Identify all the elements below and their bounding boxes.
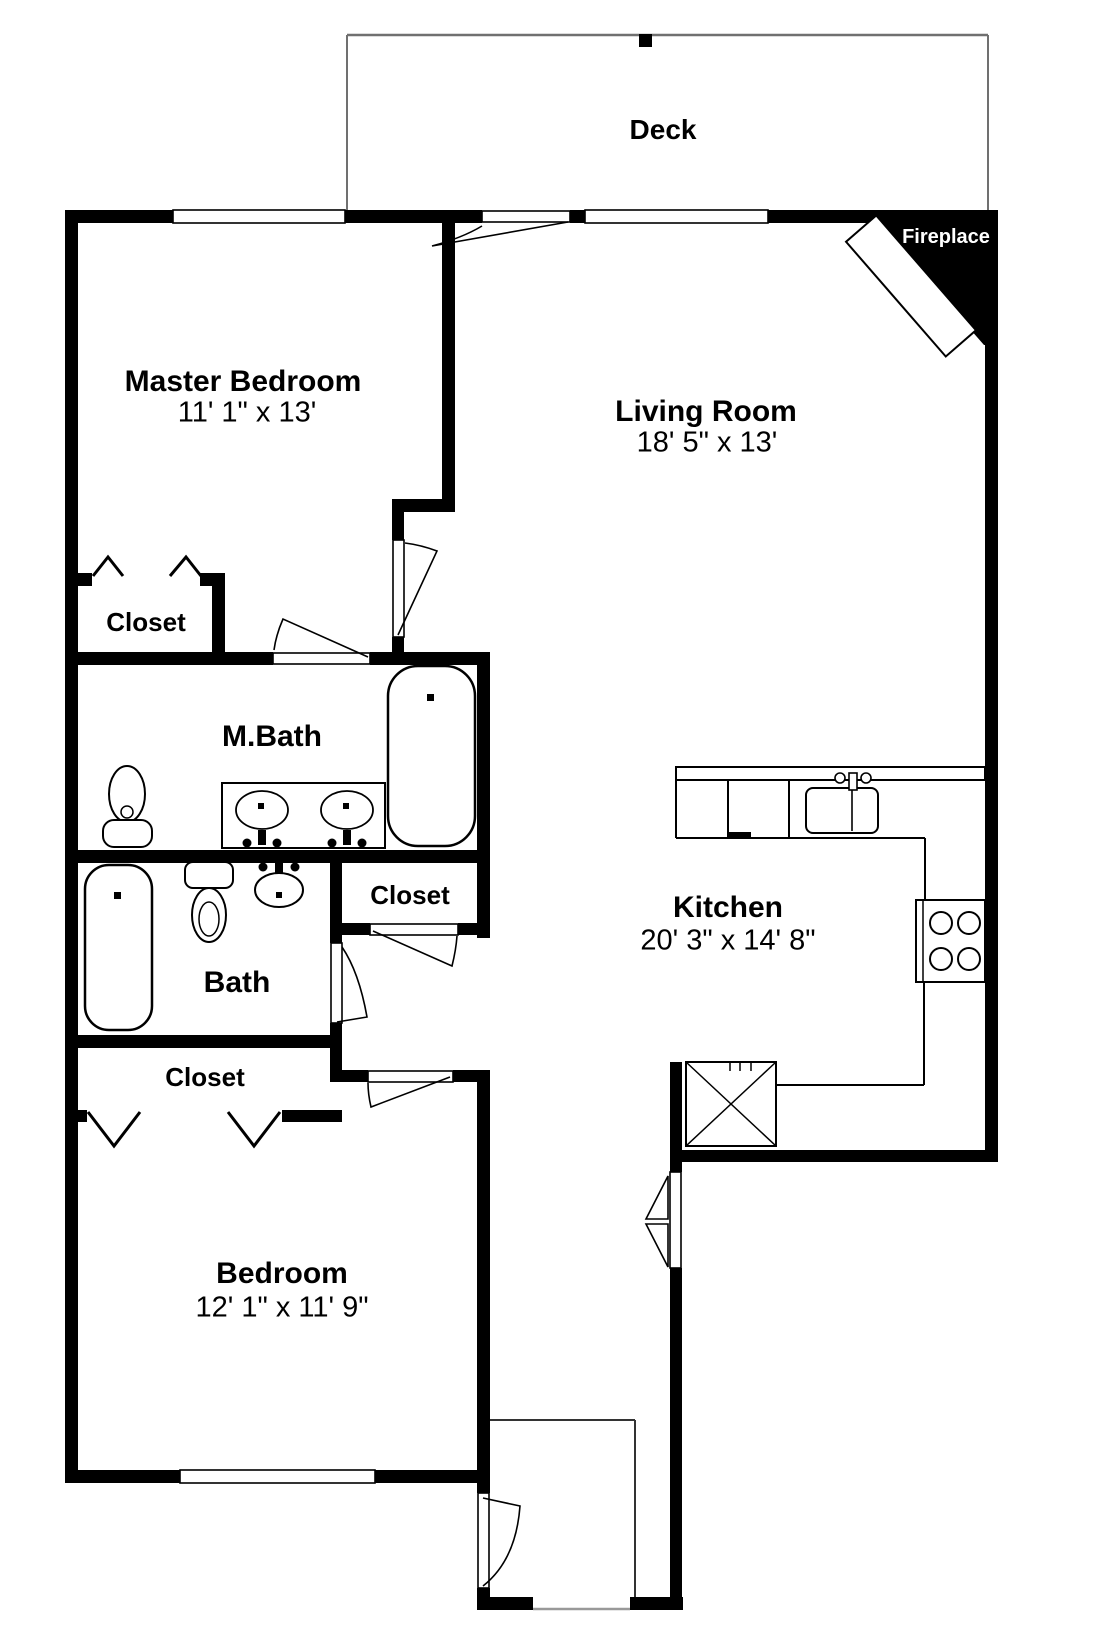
bedroom-dimensions: 12' 1" x 11' 9" [195,1294,368,1323]
bedroom-closet-bifold-icon [228,1112,280,1146]
living-room-window [585,210,768,223]
dishwasher-icon [728,780,789,839]
bedroom-door-icon [368,1071,453,1107]
fireplace-label: Fireplace [902,227,990,247]
kitchen-sink-icon [806,773,878,833]
master-closet-bifold-icon [170,557,201,576]
hall-closet-door-icon [370,924,458,966]
master-bedroom-window [173,210,345,223]
master-bath-fixtures [103,666,475,848]
kitchen-dimensions: 20' 3" x 14' 8" [640,927,815,956]
kitchen-counter-bar [676,767,985,780]
master-closet-label: Closet [106,609,185,635]
hall-closet-label: Closet [370,882,449,908]
deck-post-marker [639,34,652,47]
front-door-threshold [533,1598,630,1609]
living-room-label: Living Room [615,397,797,427]
bathtub-icon [388,666,475,846]
kitchen-label: Kitchen [673,893,783,923]
deck-label: Deck [630,116,697,144]
master-bath-label: M.Bath [222,722,322,752]
bath-door-icon [331,943,367,1023]
master-closet-bifold-icon [93,557,123,576]
master-bedroom-door-icon [393,540,437,637]
stove-icon [916,900,985,982]
entry-door-icon [646,1172,681,1268]
bath-label: Bath [204,968,271,998]
bedroom-closet-bifold-icon [88,1112,140,1146]
entry-vestibule [490,1420,635,1597]
kitchen-fixtures [676,767,985,1146]
double-vanity-icon [222,783,385,848]
master-bath-door-icon [273,619,370,664]
bedroom-closet-label: Closet [165,1064,244,1090]
bedroom-label: Bedroom [216,1259,348,1289]
living-room-dimensions: 18' 5" x 13' [637,429,778,458]
pedestal-sink-icon [103,766,152,847]
floor-plan: Deck Fireplace Master Bedroom 11' 1" x 1… [0,0,1112,1636]
master-bedroom-dimensions: 11' 1" x 13' [178,399,317,428]
bedroom-window [180,1470,375,1483]
bathtub-icon [85,865,152,1030]
oval-sink-icon [255,858,303,907]
master-bedroom-label: Master Bedroom [125,367,362,397]
bath-fixtures [85,858,303,1030]
vestibule-door-icon [478,1493,520,1588]
refrigerator-icon [686,1062,776,1146]
toilet-icon [185,862,233,942]
